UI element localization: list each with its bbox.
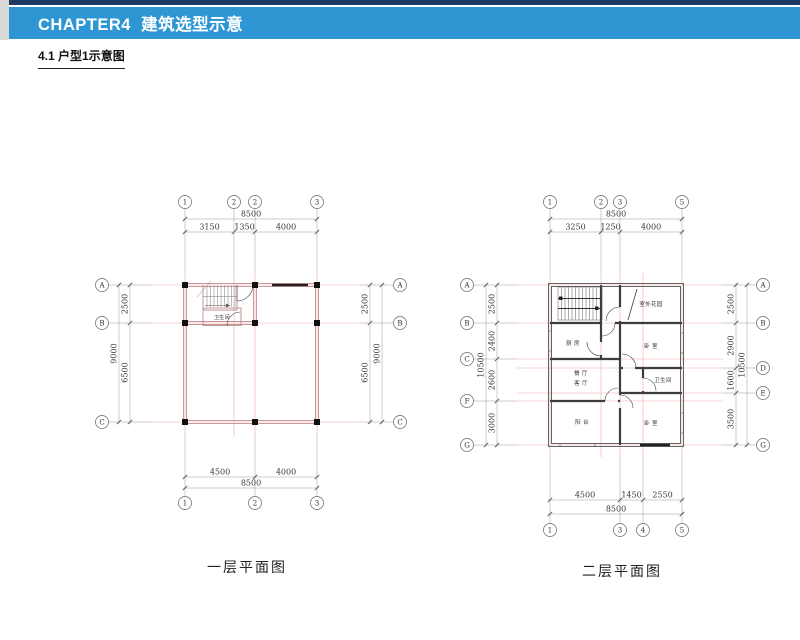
grid-bubble-label: C bbox=[99, 419, 104, 427]
grid-bubble-label: B bbox=[397, 320, 402, 328]
grid-bubble-label: C bbox=[464, 356, 469, 364]
grid-bubble-label: 1 bbox=[548, 199, 552, 207]
extension-and-dimension-lines bbox=[109, 209, 393, 497]
dimension-labels: 8500 3150 1350 4000 4500 4000 8500 2500 … bbox=[110, 210, 382, 488]
grid-bubble-label: 1 bbox=[183, 500, 187, 508]
grid-bubble-label: 3 bbox=[315, 500, 319, 508]
left-gray-strip bbox=[0, 0, 9, 40]
walls bbox=[184, 284, 319, 424]
grid-bubble-label: 5 bbox=[680, 199, 684, 207]
first-floor-plan-caption: 一层平面图 bbox=[207, 557, 287, 577]
document-page: CHAPTER4 建筑选型示意 4.1 户型1示意图 bbox=[0, 0, 800, 640]
dim-label: 2550 bbox=[652, 491, 672, 500]
grid-bubble-label: 5 bbox=[680, 527, 684, 535]
dim-label: 2500 bbox=[361, 294, 370, 314]
dim-label: 3000 bbox=[488, 413, 497, 433]
dim-label: 1600 bbox=[727, 370, 736, 390]
grid-bubble-label: A bbox=[396, 282, 403, 290]
dim-label: 3250 bbox=[565, 223, 585, 232]
grid-bubble-label: 1 bbox=[183, 199, 187, 207]
room-label-living: 客 厅 bbox=[574, 379, 588, 387]
garden-boundary-line bbox=[628, 289, 637, 320]
doors bbox=[227, 285, 253, 326]
grid-bubble-label: 3 bbox=[315, 199, 319, 207]
grid-bubble-label: G bbox=[464, 442, 470, 450]
grid-bubbles: 1 2 3 5 1 3 4 5 A B C F G A B D E G bbox=[461, 196, 770, 537]
dim-label: 8500 bbox=[241, 479, 261, 488]
dim-label: 4000 bbox=[641, 223, 661, 232]
grid-bubble-label: B bbox=[99, 320, 104, 328]
room-label-bedroom-bottom: 卧 室 bbox=[644, 419, 658, 427]
room-label-balcony: 阳 台 bbox=[575, 418, 589, 426]
grid-bubble-label: C bbox=[397, 419, 402, 427]
dim-label: 3500 bbox=[727, 409, 736, 429]
dim-label: 3150 bbox=[199, 223, 219, 232]
grid-bubble-label: 2 bbox=[253, 199, 257, 207]
dim-label: 2500 bbox=[121, 294, 130, 314]
room-label-kitchen: 厨 房 bbox=[566, 339, 580, 347]
dim-label: 6500 bbox=[121, 362, 130, 382]
dim-label: 10500 bbox=[477, 352, 486, 377]
dim-label: 9000 bbox=[110, 343, 119, 363]
grid-bubble-label: E bbox=[760, 390, 765, 398]
room-label-garden: 室外花园 bbox=[639, 300, 662, 308]
dim-label: 2500 bbox=[727, 294, 736, 314]
room-label-bathroom: 卫生间 bbox=[654, 376, 671, 384]
room-label-dining: 餐 厅 bbox=[574, 369, 588, 377]
room-label-bedroom-top: 卧 室 bbox=[644, 342, 658, 350]
grid-bubbles: 1 2 2 3 1 2 3 A B C A B C bbox=[96, 196, 407, 510]
dim-label: 4500 bbox=[210, 468, 230, 477]
grid-bubble-label: 3 bbox=[618, 199, 622, 207]
grid-bubble-label: A bbox=[98, 282, 105, 290]
dim-label: 1250 bbox=[600, 223, 620, 232]
dim-label: 6500 bbox=[361, 362, 370, 382]
grid-bubble-label: F bbox=[465, 398, 470, 406]
grid-bubble-label: A bbox=[463, 282, 470, 290]
dim-label: 10500 bbox=[738, 352, 747, 377]
dimension-labels: 8500 3250 1250 4000 4500 1450 2550 8500 … bbox=[477, 210, 747, 514]
second-floor-plan-caption: 二层平面图 bbox=[582, 561, 662, 581]
first-floor-plan-drawing: 8500 3150 1350 4000 4500 4000 8500 2500 … bbox=[90, 185, 440, 515]
grid-bubble-label: G bbox=[760, 442, 766, 450]
grid-bubble-label: 2 bbox=[599, 199, 603, 207]
dim-label: 2500 bbox=[488, 294, 497, 314]
dim-label: 4500 bbox=[575, 491, 595, 500]
grid-bubble-label: 2 bbox=[253, 500, 257, 508]
grid-bubble-label: 1 bbox=[548, 527, 552, 535]
staircase bbox=[558, 287, 602, 320]
dim-label: 1450 bbox=[621, 491, 641, 500]
dim-label: 8500 bbox=[606, 210, 626, 219]
dim-label: 8500 bbox=[606, 505, 626, 514]
chapter-header-bar: CHAPTER4 建筑选型示意 bbox=[9, 7, 800, 39]
dim-label: 9000 bbox=[373, 343, 382, 363]
dim-label: 4000 bbox=[276, 468, 296, 477]
dim-label: 1350 bbox=[234, 223, 254, 232]
grid-bubble-label: 2 bbox=[232, 199, 236, 207]
dim-label: 2400 bbox=[488, 331, 497, 351]
dim-label: 2600 bbox=[488, 370, 497, 390]
room-label-bathroom: 卫生间 bbox=[214, 314, 230, 321]
dim-label: 4000 bbox=[276, 223, 296, 232]
dim-label: 2900 bbox=[727, 335, 736, 355]
grid-bubble-label: A bbox=[759, 282, 766, 290]
grid-bubble-label: B bbox=[760, 320, 765, 328]
window bbox=[272, 284, 308, 286]
windows bbox=[549, 331, 684, 447]
second-floor-plan-drawing: 8500 3250 1250 4000 4500 1450 2550 8500 … bbox=[455, 185, 800, 545]
top-navy-strip bbox=[9, 0, 800, 5]
extension-and-dimension-lines bbox=[473, 209, 756, 524]
grid-bubble-label: B bbox=[464, 320, 469, 328]
section-title: 4.1 户型1示意图 bbox=[38, 47, 125, 69]
grid-bubble-label: D bbox=[760, 365, 766, 373]
dim-label: 8500 bbox=[241, 210, 261, 219]
chapter-title: CHAPTER4 建筑选型示意 bbox=[38, 11, 243, 35]
grid-bubble-label: 4 bbox=[641, 527, 646, 535]
grid-bubble-label: 3 bbox=[618, 527, 622, 535]
